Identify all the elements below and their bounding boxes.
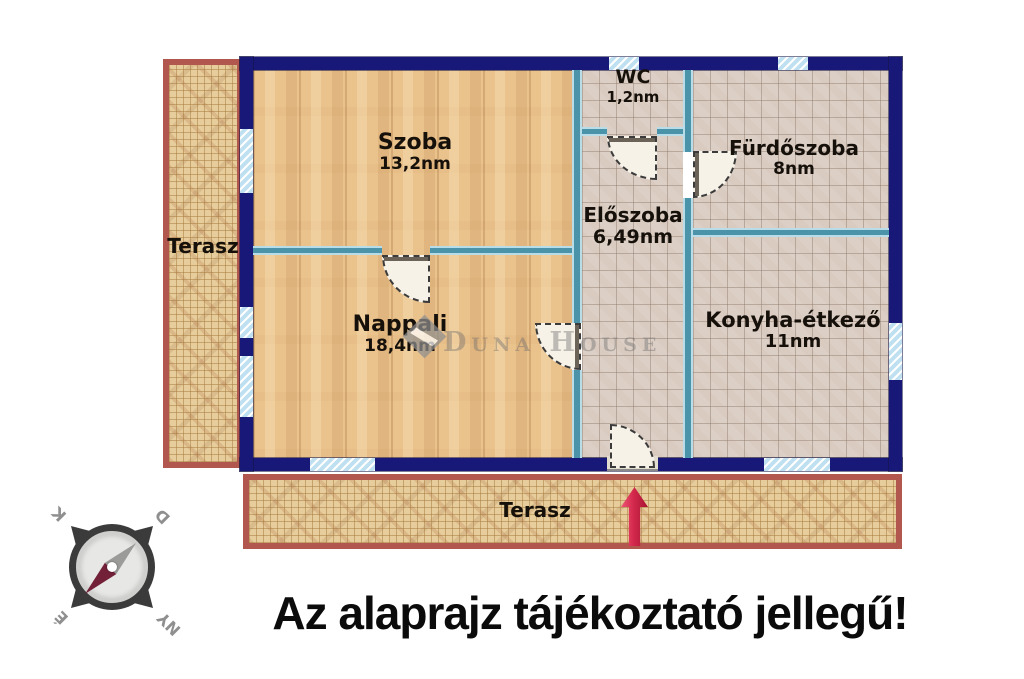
room-name-konyha: Konyha-étkező (693, 308, 893, 332)
partition-wc-b (657, 127, 683, 136)
room-name-furdoszoba: Fürdőszoba (694, 137, 894, 160)
room-area-konyha: 11nm (693, 332, 893, 353)
compass-rose: É D K NY (34, 489, 190, 645)
compass-label-north: É (51, 607, 72, 628)
room-label-szoba: Szoba 13,2nm (300, 130, 530, 175)
compass-icon: É D K NY (57, 512, 167, 622)
compass-label-east: K (48, 503, 70, 525)
window-icon-top-2 (778, 57, 808, 70)
watermark-text: Duna House (443, 327, 661, 358)
terrace-bottom-label: Terasz (450, 498, 620, 522)
window-icon-left-1 (240, 129, 253, 193)
room-label-konyha: Konyha-étkező 11nm (693, 308, 893, 353)
window-icon-bottom-2 (764, 458, 830, 471)
room-label-wc: WC 1,2nm (578, 67, 688, 106)
floor-bath-kitchen (693, 70, 889, 458)
room-label-eloszoba: Előszoba 6,49nm (577, 204, 689, 249)
room-name-szoba: Szoba (300, 130, 530, 155)
floor-plan: Szoba 13,2nm WC 1,2nm Fürdőszoba 8nm Elő… (0, 0, 1024, 679)
room-name-eloszoba: Előszoba (577, 204, 689, 227)
room-area-wc: 1,2nm (578, 89, 688, 106)
partition-wc-a (582, 127, 607, 136)
wall-right (889, 57, 902, 471)
partition-hall-left-lower (572, 370, 582, 458)
room-name-wc: WC (578, 67, 688, 89)
disclaimer-caption: Az alaprajz tájékoztató jellegű! (150, 586, 1024, 640)
room-area-furdoszoba: 8nm (694, 160, 894, 180)
room-area-szoba: 13,2nm (300, 155, 530, 175)
window-icon-left-2 (240, 307, 253, 338)
room-label-furdoszoba: Fürdőszoba 8nm (694, 137, 894, 180)
door-leaf-szoba (384, 257, 428, 261)
partition-szoba-nappali-a (253, 246, 382, 255)
window-icon-left-3 (240, 356, 253, 417)
partition-hall-left-upper (572, 70, 582, 323)
door-leaf-wc (609, 138, 655, 142)
partition-szoba-nappali-b (430, 246, 572, 255)
partition-furdo-konyha (693, 228, 889, 237)
terrace-left (163, 59, 243, 468)
room-area-eloszoba: 6,49nm (577, 227, 689, 249)
window-icon-bottom-1 (310, 458, 375, 471)
compass-label-south: D (151, 505, 174, 528)
terrace-left-label: Terasz (161, 234, 245, 258)
